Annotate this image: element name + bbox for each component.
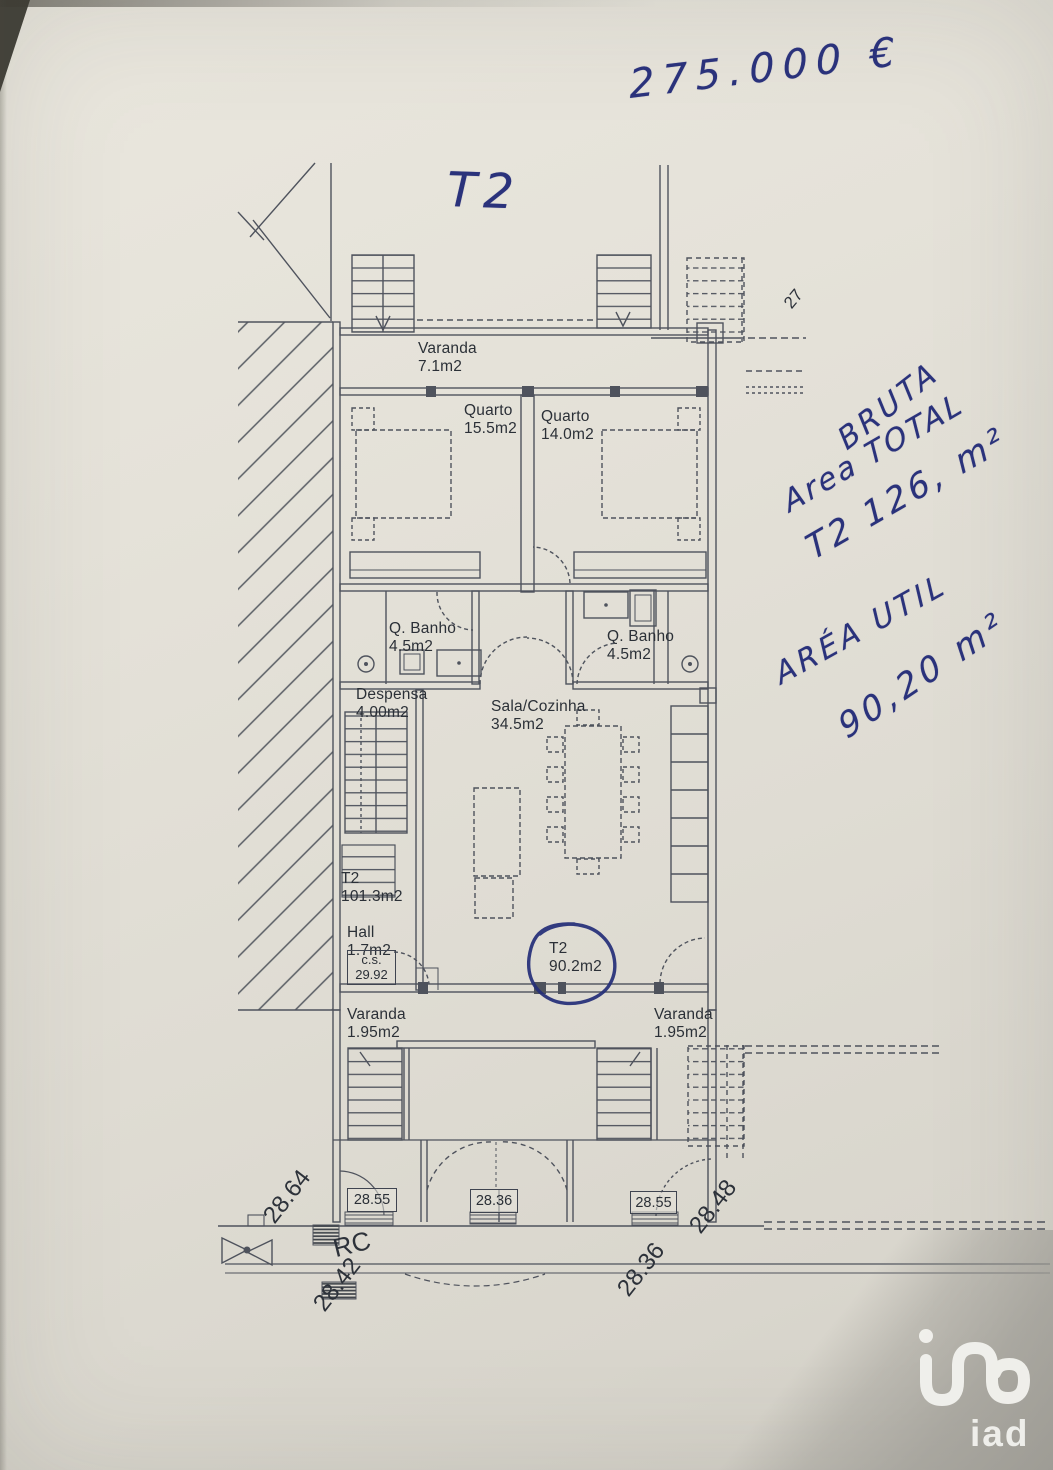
room-label-quarto-left: Quarto 15.5m2 (464, 402, 517, 438)
room-label-varanda-bottom-right: Varanda 1.95m2 (654, 1006, 713, 1042)
floorplan-photo: Varanda 7.1m2 Quarto 15.5m2 Quarto 14.0m… (0, 0, 1053, 1470)
room-label-sala-cozinha: Sala/Cozinha 34.5m2 (491, 698, 586, 734)
room-label-t2-total: T2 101.3m2 (341, 870, 403, 906)
level-box-center: 28.36 (470, 1189, 518, 1213)
level-box-left: 28.55 (347, 1188, 397, 1212)
room-label-banho-right: Q. Banho 4.5m2 (607, 628, 674, 664)
iad-logo-text: iad (970, 1413, 1029, 1454)
room-label-quarto-right: Quarto 14.0m2 (541, 408, 594, 444)
room-label-varanda-bottom-left: Varanda 1.95m2 (347, 1006, 406, 1042)
room-label-varanda-top: Varanda 7.1m2 (418, 340, 477, 376)
room-label-despensa: Despensa 4.00m2 (356, 686, 427, 722)
iad-logo: iad (898, 1322, 1048, 1462)
room-label-t2-util-circled: T2 90.2m2 (549, 940, 602, 976)
handwritten-unit-type: T2 (446, 162, 522, 221)
level-box-right: 28.55 (630, 1191, 677, 1214)
cs-level-box: c.s. 29.92 (347, 950, 396, 985)
photo-top-edge-shadow (0, 0, 660, 7)
room-label-banho-left: Q. Banho 4.5m2 (389, 620, 456, 656)
photo-left-edge-shadow (0, 0, 7, 1470)
